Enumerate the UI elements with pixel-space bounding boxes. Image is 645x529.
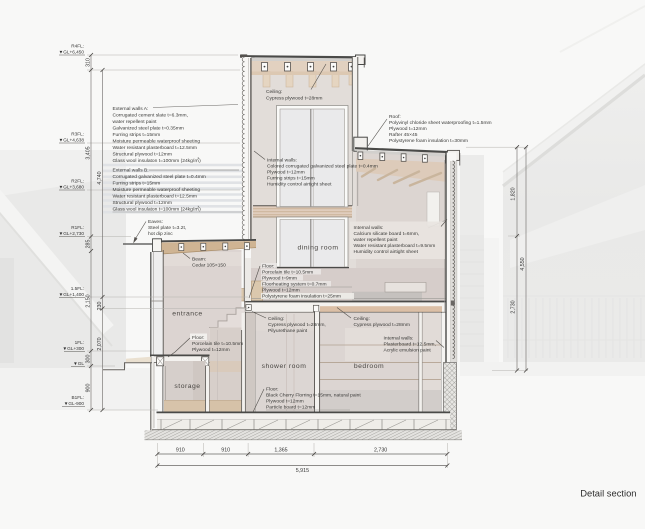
svg-text:Plywood t=12mm: Plywood t=12mm <box>192 347 230 353</box>
svg-text:Plywood t=12mm: Plywood t=12mm <box>266 399 304 405</box>
svg-text:2,070: 2,070 <box>97 337 103 350</box>
svg-text:2,730: 2,730 <box>511 300 517 313</box>
svg-text:▼GL+1,400: ▼GL+1,400 <box>59 292 85 297</box>
svg-text:1FL:: 1FL: <box>75 340 84 345</box>
svg-text:Roof:: Roof: <box>389 114 401 120</box>
svg-text:water repellent paint: water repellent paint <box>113 119 158 125</box>
svg-text:Floorheating system t=0.7mm: Floorheating system t=0.7mm <box>262 282 327 288</box>
svg-text:2,730: 2,730 <box>374 448 387 454</box>
svg-text:Galvanized steel plate t=0.35m: Galvanized steel plate t=0.35mm <box>113 126 184 132</box>
svg-text:R2FL:: R2FL: <box>71 179 84 184</box>
svg-text:External walls A:: External walls A: <box>113 106 149 112</box>
svg-text:▼GL+2,730: ▼GL+2,730 <box>59 231 85 236</box>
svg-text:5,915: 5,915 <box>296 468 309 474</box>
svg-text:2,150: 2,150 <box>86 294 92 307</box>
svg-text:▼GL+3,680: ▼GL+3,680 <box>59 185 85 190</box>
svg-text:Porcelain tile t=10.5mm: Porcelain tile t=10.5mm <box>192 341 243 347</box>
svg-text:Eaves:: Eaves: <box>148 219 163 225</box>
svg-text:230: 230 <box>97 302 103 311</box>
svg-text:Glass wool insulaton t=100mm (: Glass wool insulaton t=100mm (24kg/㎥) <box>113 206 202 213</box>
svg-text:Porcelain tile t=10.5mm: Porcelain tile t=10.5mm <box>262 270 313 276</box>
svg-text:Beam:: Beam: <box>192 257 206 263</box>
svg-text:910: 910 <box>221 448 230 454</box>
svg-text:Ceiling:: Ceiling: <box>266 89 282 95</box>
svg-text:Pilyurethane paint: Pilyurethane paint <box>268 328 308 334</box>
svg-text:Black Cherry Florring t=15mm,: Black Cherry Florring t=15mm, natural pa… <box>266 393 361 399</box>
svg-text:External walls B:: External walls B: <box>113 168 149 174</box>
svg-text:Furring strips t=15mm: Furring strips t=15mm <box>113 181 161 187</box>
svg-text:▼GL+6,450: ▼GL+6,450 <box>59 50 85 55</box>
svg-text:Floor:: Floor: <box>192 335 205 341</box>
svg-text:Water resistant plasterboard t: Water resistant plasterboard t=9.5mm <box>354 243 436 249</box>
svg-text:R4FL:: R4FL: <box>71 44 84 49</box>
svg-text:Internal walls:: Internal walls: <box>384 336 414 342</box>
svg-text:Calcium silicate board t=6mm,: Calcium silicate board t=6mm, <box>354 231 420 237</box>
svg-text:R1FL:: R1FL: <box>71 225 84 230</box>
svg-text:Polyvinyl chloride sheet water: Polyvinyl chloride sheet waterproofing t… <box>389 120 492 126</box>
svg-text:▼GL: ▼GL <box>73 361 84 366</box>
svg-text:Internal walls:: Internal walls: <box>267 158 297 164</box>
svg-text:hot dip zinc: hot dip zinc <box>148 231 173 237</box>
svg-text:910: 910 <box>176 448 185 454</box>
svg-text:Moisture permeable waterproof: Moisture permeable waterproof sheeting <box>113 187 201 193</box>
svg-text:Internal walls:: Internal walls: <box>354 225 384 231</box>
svg-text:1,365: 1,365 <box>274 448 287 454</box>
svg-text:1,820: 1,820 <box>511 187 517 200</box>
svg-text:Cypress plywood t=28mm: Cypress plywood t=28mm <box>354 322 410 328</box>
svg-text:Structural plywood t=12mm: Structural plywood t=12mm <box>113 200 172 206</box>
svg-text:Furring strips t=15mm: Furring strips t=15mm <box>267 176 315 182</box>
svg-text:Polystyrene foam insulation t=: Polystyrene foam insulation t=30mm <box>389 138 468 144</box>
svg-text:4,550: 4,550 <box>520 257 526 270</box>
svg-text:bedroom: bedroom <box>354 363 384 370</box>
svg-text:Plasterboard t=12.5mm,: Plasterboard t=12.5mm, <box>384 342 436 348</box>
svg-text:Polystyrene foam insulation t=: Polystyrene foam insulation t=25mm <box>262 294 341 300</box>
svg-text:3,405: 3,405 <box>86 146 92 159</box>
svg-text:Cedar 105×150: Cedar 105×150 <box>192 263 226 269</box>
svg-text:Detail section: Detail section <box>580 487 636 498</box>
svg-text:Humidity control airtight shee: Humidity control airtight sheet <box>354 249 419 255</box>
svg-text:R3FL:: R3FL: <box>71 132 84 137</box>
svg-text:storage: storage <box>174 383 200 390</box>
svg-text:Particle board t=12mm: Particle board t=12mm <box>266 405 315 411</box>
svg-text:Ceiling:: Ceiling: <box>354 316 370 322</box>
svg-text:Floor:: Floor: <box>262 264 275 270</box>
svg-text:Steel plate t=3.2t,: Steel plate t=3.2t, <box>148 225 186 231</box>
svg-text:Plywood t=12mm: Plywood t=12mm <box>262 288 300 294</box>
svg-text:Cypress plywood t=28mm,: Cypress plywood t=28mm, <box>268 322 326 328</box>
svg-text:Floor:: Floor: <box>266 387 279 393</box>
svg-text:Water resistant plasterboard t: Water resistant plasterboard t=12.5mm <box>113 194 198 200</box>
svg-text:B1FL:: B1FL: <box>71 395 84 400</box>
svg-text:Corrugated galvanized steel pl: Corrugated galvanized steel plate t=0.4m… <box>113 174 206 180</box>
svg-text:Plywood t=12mm: Plywood t=12mm <box>389 126 427 132</box>
svg-text:Structural plywood t=12mm: Structural plywood t=12mm <box>113 152 172 158</box>
svg-text:Ceiling:: Ceiling: <box>268 316 284 322</box>
svg-text:Plywood t=12mm: Plywood t=12mm <box>267 170 305 176</box>
svg-text:▼GL+300: ▼GL+300 <box>63 346 85 351</box>
svg-text:Glass wool insulaton t=100mm (: Glass wool insulaton t=100mm (24kg/㎥) <box>113 157 202 164</box>
svg-text:Cypress plywood t=28mm: Cypress plywood t=28mm <box>266 96 322 102</box>
svg-text:entrance: entrance <box>172 311 202 318</box>
svg-text:310: 310 <box>86 58 92 67</box>
svg-text:Moisture permeable waterproof: Moisture permeable waterproof sheeting <box>113 139 201 145</box>
svg-text:300: 300 <box>86 355 92 364</box>
svg-text:Corrugated cement slate t=6.3m: Corrugated cement slate t=6.3mm, <box>113 113 188 119</box>
svg-text:285: 285 <box>86 240 92 249</box>
svg-text:Humidity control airtight shee: Humidity control airtight sheet <box>267 182 332 188</box>
svg-text:4,740: 4,740 <box>97 171 103 184</box>
svg-text:Furring strips t=15mm: Furring strips t=15mm <box>113 132 161 138</box>
svg-text:Rafter 45×45: Rafter 45×45 <box>389 132 418 138</box>
svg-text:dining room: dining room <box>297 245 338 252</box>
svg-text:1.5FL:: 1.5FL: <box>71 286 84 291</box>
svg-text:shower room: shower room <box>262 363 307 370</box>
svg-text:▼GL+4,638: ▼GL+4,638 <box>59 138 85 143</box>
svg-text:Colored corrugated galvanized: Colored corrugated galvanized steel plat… <box>267 164 378 170</box>
svg-text:Water resistant plasterboard t: Water resistant plasterboard t=12.5mm <box>113 145 198 151</box>
svg-text:Plywood t=9mm: Plywood t=9mm <box>262 276 297 282</box>
svg-text:Acrylic emulsion paint: Acrylic emulsion paint <box>384 348 432 354</box>
svg-text:water repellent paint: water repellent paint <box>354 237 399 243</box>
svg-text:▼GL-900: ▼GL-900 <box>64 401 85 406</box>
svg-text:900: 900 <box>86 384 92 393</box>
